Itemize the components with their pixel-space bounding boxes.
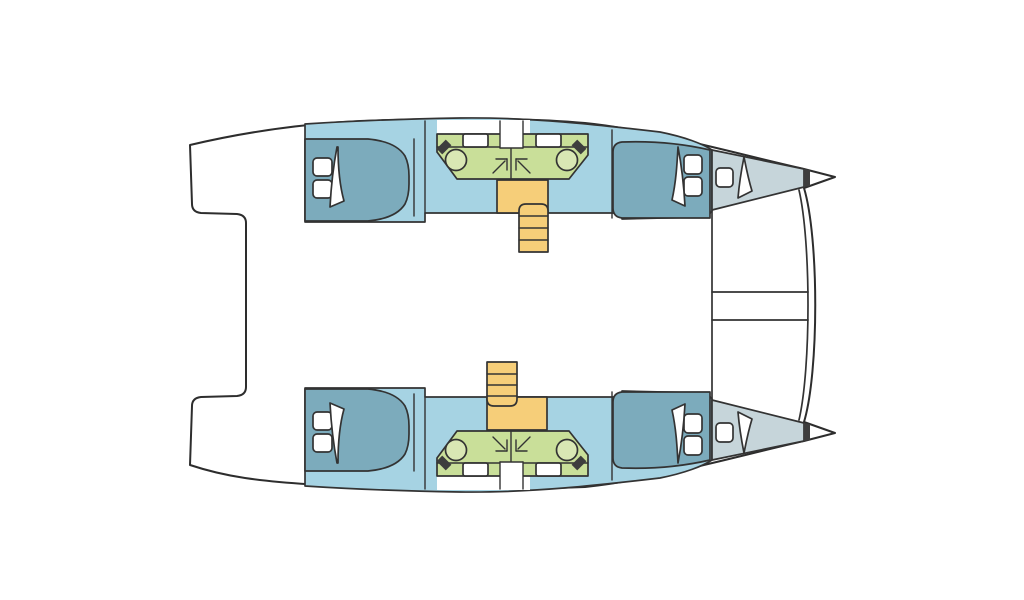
pillow-icon: [684, 155, 702, 174]
pillow-icon: [313, 158, 332, 176]
pillow-icon: [684, 177, 702, 196]
toilet-icon: [536, 134, 561, 147]
sink-icon: [557, 150, 578, 171]
door-opening: [500, 121, 523, 148]
aft-berth: [305, 139, 409, 221]
floor-plan-canvas: [0, 0, 1024, 600]
catamaran-floor-plan: [0, 0, 1024, 600]
companionway-stairs: [487, 362, 517, 406]
forward-berth: [613, 142, 710, 218]
toilet-icon: [463, 134, 488, 147]
deck-hatch-icon: [716, 168, 733, 187]
sink-icon: [446, 150, 467, 171]
pillow-icon: [313, 180, 332, 198]
bow-bulkhead: [804, 169, 810, 187]
